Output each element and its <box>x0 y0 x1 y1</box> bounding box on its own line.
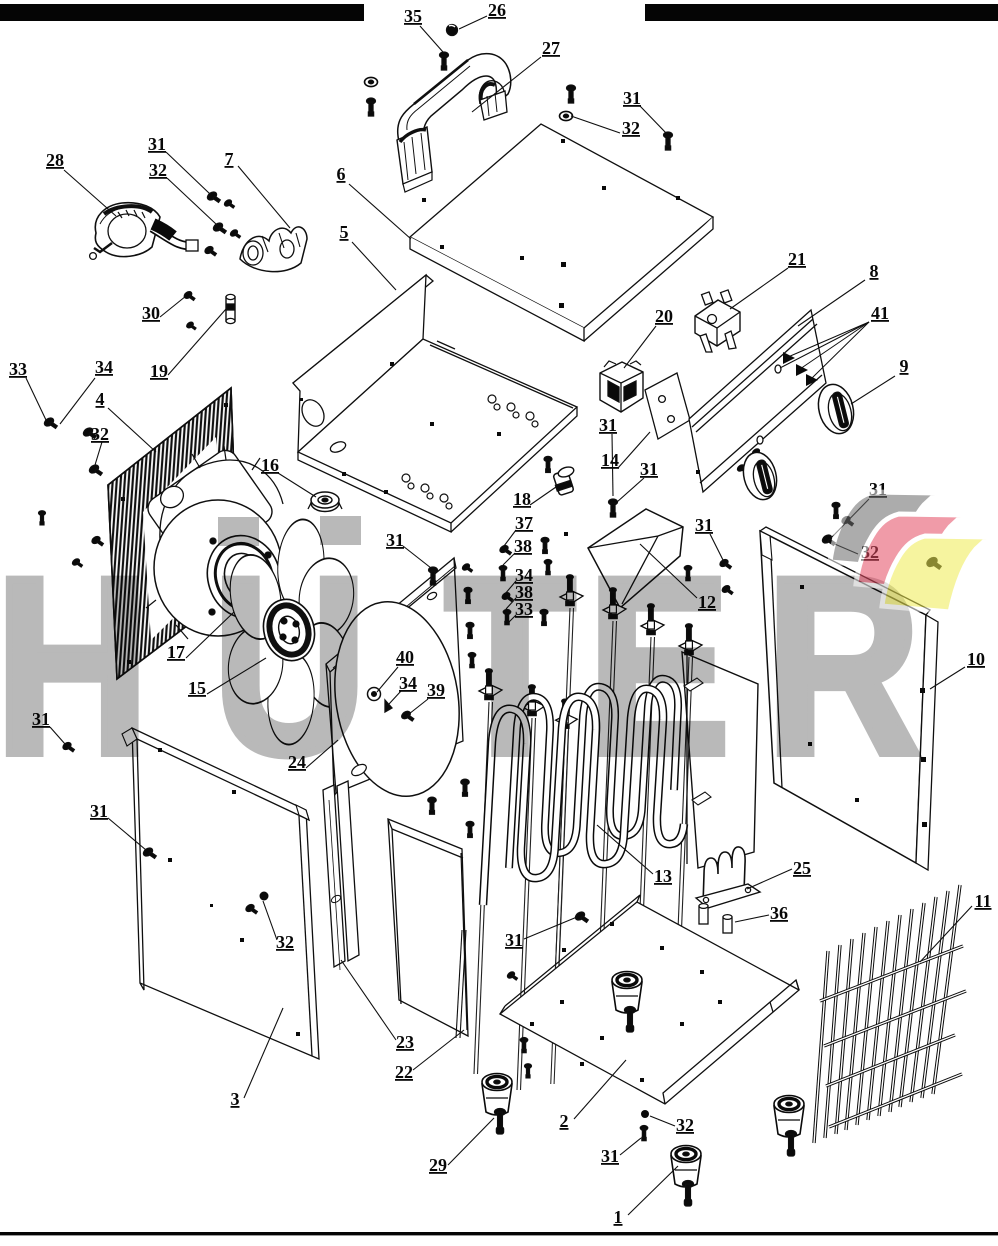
svg-text:32: 32 <box>676 1115 694 1135</box>
svg-text:31: 31 <box>386 530 404 550</box>
svg-text:2: 2 <box>560 1111 569 1131</box>
svg-text:6: 6 <box>337 164 346 184</box>
svg-text:31: 31 <box>599 415 617 435</box>
svg-text:H: H <box>0 525 150 807</box>
svg-text:15: 15 <box>188 678 206 698</box>
svg-text:22: 22 <box>395 1062 413 1082</box>
svg-text:13: 13 <box>654 866 672 886</box>
svg-text:32: 32 <box>149 160 167 180</box>
svg-text:31: 31 <box>601 1146 619 1166</box>
svg-text:33: 33 <box>9 359 27 379</box>
svg-text:8: 8 <box>870 261 879 281</box>
svg-text:29: 29 <box>429 1155 447 1175</box>
svg-text:20: 20 <box>655 306 673 326</box>
svg-text:7: 7 <box>225 149 234 169</box>
svg-text:39: 39 <box>427 680 445 700</box>
svg-text:26: 26 <box>488 0 506 20</box>
svg-text:5: 5 <box>340 222 349 242</box>
svg-text:21: 21 <box>788 249 806 269</box>
svg-text:3: 3 <box>231 1089 240 1109</box>
svg-text:9: 9 <box>900 356 909 376</box>
svg-text:31: 31 <box>505 930 523 950</box>
svg-text:17: 17 <box>167 642 185 662</box>
svg-text:T: T <box>445 525 576 807</box>
svg-text:23: 23 <box>396 1032 414 1052</box>
svg-text:18: 18 <box>513 489 531 509</box>
svg-text:11: 11 <box>974 891 991 911</box>
svg-text:4: 4 <box>96 389 105 409</box>
svg-text:14: 14 <box>601 450 619 470</box>
svg-text:36: 36 <box>770 903 788 923</box>
svg-text:35: 35 <box>404 6 422 26</box>
svg-text:32: 32 <box>276 932 294 952</box>
svg-text:25: 25 <box>793 858 811 878</box>
svg-text:19: 19 <box>150 361 168 381</box>
svg-text:31: 31 <box>640 459 658 479</box>
svg-text:31: 31 <box>623 88 641 108</box>
svg-text:28: 28 <box>46 150 64 170</box>
svg-text:32: 32 <box>622 118 640 138</box>
svg-text:30: 30 <box>142 303 160 323</box>
svg-text:U: U <box>213 525 368 807</box>
svg-text:E: E <box>587 525 730 807</box>
svg-text:31: 31 <box>148 134 166 154</box>
svg-text:1: 1 <box>614 1207 623 1227</box>
svg-text:34: 34 <box>95 357 113 377</box>
svg-text:32: 32 <box>91 424 109 444</box>
svg-text:27: 27 <box>542 38 560 58</box>
svg-text:40: 40 <box>396 647 414 667</box>
svg-text:16: 16 <box>261 455 279 475</box>
svg-text:10: 10 <box>967 649 985 669</box>
svg-text:41: 41 <box>871 303 889 323</box>
svg-text:34: 34 <box>399 673 417 693</box>
